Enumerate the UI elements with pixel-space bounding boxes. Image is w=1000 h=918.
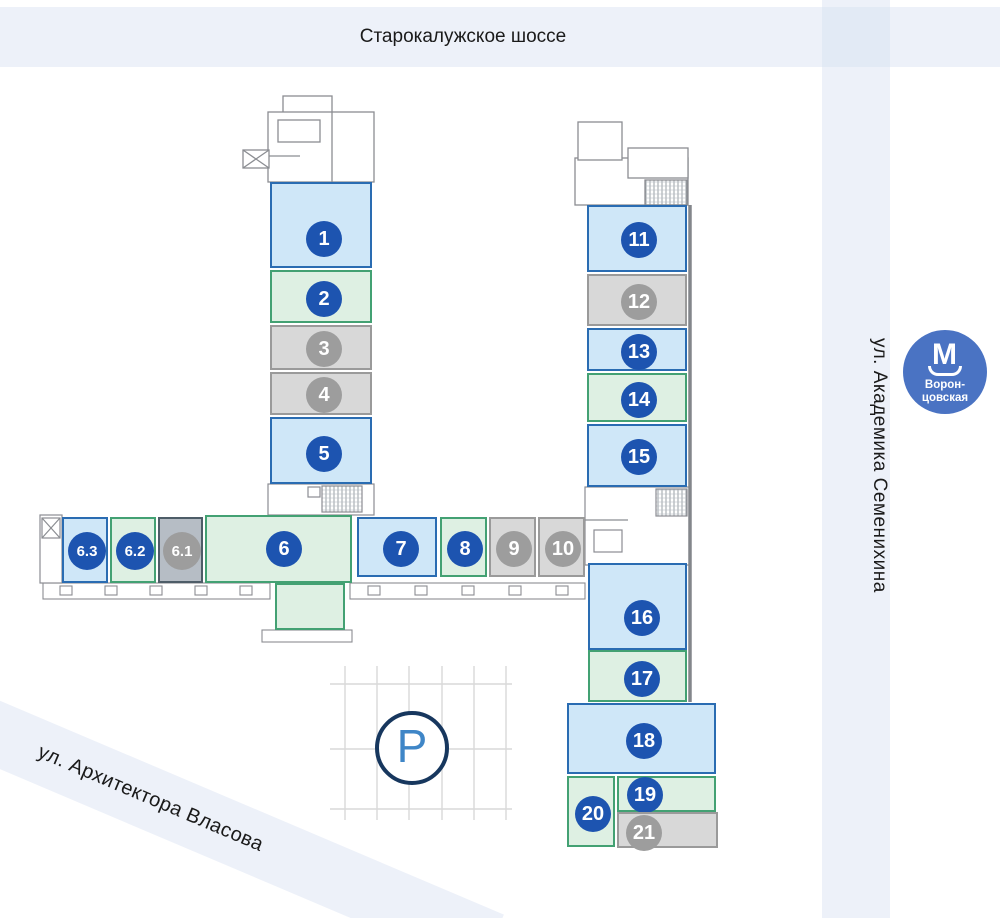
unit-21[interactable]: 21 — [617, 812, 718, 848]
unit-3-number-badge: 3 — [306, 331, 342, 367]
unit-19[interactable]: 19 — [617, 776, 716, 812]
unit-3[interactable]: 3 — [270, 325, 372, 370]
unit-12[interactable]: 12 — [587, 274, 687, 326]
unit-7-number-badge: 7 — [383, 531, 419, 567]
parking-letter: P — [397, 723, 428, 773]
unit-14[interactable]: 14 — [587, 373, 687, 422]
unit-8-number-badge: 8 — [447, 531, 483, 567]
left-wing-entrance — [243, 96, 374, 182]
unit-11[interactable]: 11 — [587, 205, 687, 272]
unit-6-3[interactable]: 6.3 — [62, 517, 108, 583]
unit-1-number-badge: 1 — [306, 221, 342, 257]
unit-2[interactable]: 2 — [270, 270, 372, 323]
unit-21-number-badge: 21 — [626, 815, 662, 851]
unit-12-number-badge: 12 — [621, 284, 657, 320]
unit-5-number-badge: 5 — [306, 436, 342, 472]
unit-15-number-badge: 15 — [621, 439, 657, 475]
unit-2-number-badge: 2 — [306, 281, 342, 317]
unit-6-number-badge: 6 — [266, 531, 302, 567]
unit-10-number-badge: 10 — [545, 531, 581, 567]
gallery-west-end — [40, 515, 62, 583]
unit-18-number-badge: 18 — [626, 723, 662, 759]
unit-13-number-badge: 13 — [621, 334, 657, 370]
metro-logo-arc — [928, 366, 962, 376]
right-wing-entrance — [575, 122, 688, 205]
unit-19-number-badge: 19 — [627, 777, 663, 813]
unit-6-2-number-badge: 6.2 — [116, 532, 154, 570]
unit-11-number-badge: 11 — [621, 222, 657, 258]
left-wing-stairwell — [268, 484, 374, 515]
unit-6-annex — [275, 583, 345, 630]
right-wing-stairwell — [585, 487, 690, 565]
unit-4[interactable]: 4 — [270, 372, 372, 415]
unit-6-2[interactable]: 6.2 — [110, 517, 156, 583]
metro-station-name: Ворон- цовская — [922, 379, 968, 405]
unit-1[interactable]: 1 — [270, 182, 372, 268]
unit-13[interactable]: 13 — [587, 328, 687, 371]
metro-station-name-line2: цовская — [922, 392, 968, 405]
unit-8[interactable]: 8 — [440, 517, 487, 577]
unit-10[interactable]: 10 — [538, 517, 585, 577]
unit-14-number-badge: 14 — [621, 382, 657, 418]
unit-6-1-number-badge: 6.1 — [163, 532, 201, 570]
metro-station-name-line1: Ворон- — [922, 379, 968, 392]
unit-6[interactable]: 6 — [205, 515, 352, 583]
unit-9-number-badge: 9 — [496, 531, 532, 567]
unit-18[interactable]: 18 — [567, 703, 716, 774]
unit-17-number-badge: 17 — [624, 661, 660, 697]
unit-9[interactable]: 9 — [489, 517, 536, 577]
unit-6-3-number-badge: 6.3 — [68, 532, 106, 570]
building-outline-drawing — [0, 0, 1000, 918]
unit-5[interactable]: 5 — [270, 417, 372, 484]
parking-sign: P — [375, 711, 449, 785]
metro-station-badge: М Ворон- цовская — [903, 330, 987, 414]
unit-16-number-badge: 16 — [624, 600, 660, 636]
unit-17[interactable]: 17 — [588, 650, 687, 702]
unit-20[interactable]: 20 — [567, 776, 615, 847]
unit-16[interactable]: 16 — [588, 563, 687, 650]
floor-plan-canvas: Старокалужское шоссе ул. Академика Семен… — [0, 0, 1000, 918]
unit-20-number-badge: 20 — [575, 796, 611, 832]
unit-6-1[interactable]: 6.1 — [158, 517, 203, 583]
unit-7[interactable]: 7 — [357, 517, 437, 577]
unit-4-number-badge: 4 — [306, 377, 342, 413]
unit-15[interactable]: 15 — [587, 424, 687, 487]
